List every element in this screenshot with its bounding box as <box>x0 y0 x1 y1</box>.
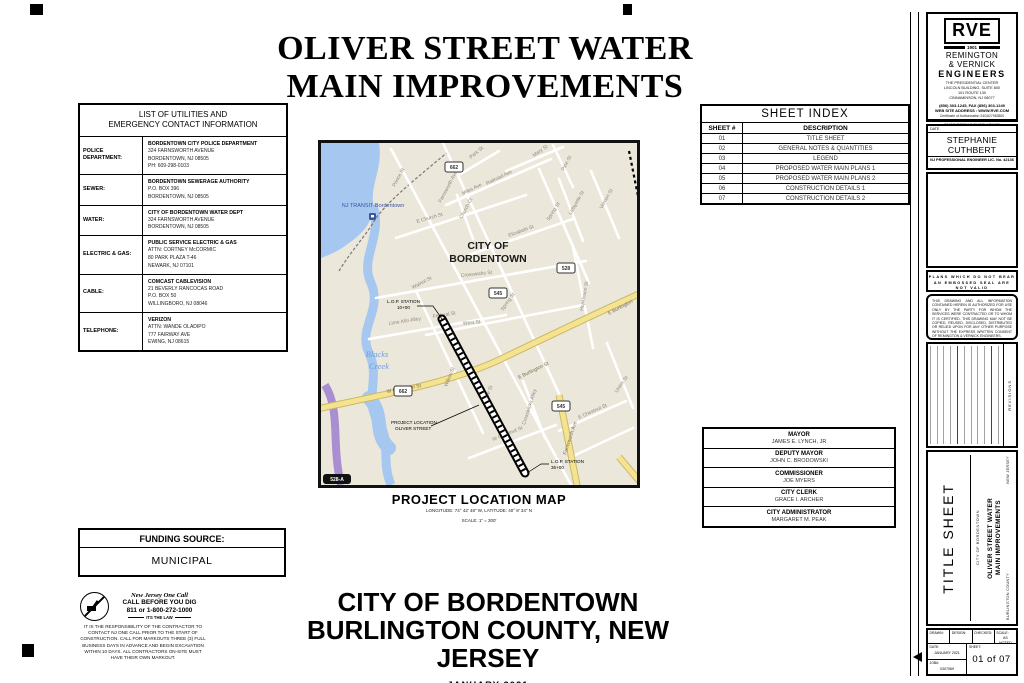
street-label: Farnsworth Ave <box>437 170 459 204</box>
officials-table: MAYORJAMES E. LYNCH, JR DEPUTY MAYORJOHN… <box>702 427 896 528</box>
firm-name: REMINGTON& VERNICK <box>928 51 1016 69</box>
scale-cell: SCALE:AS NOTED <box>995 630 1016 643</box>
firm-block: RVE 1901 REMINGTON& VERNICK ENGINEERS TH… <box>926 12 1018 122</box>
engineer-block: DATE STEPHANIE CUTHBERT NJ PROFESSIONAL … <box>926 124 1018 170</box>
street-label: E Burlington St <box>517 361 550 381</box>
utility-row: TELEPHONE: VERIZONATTN: WANDE OLADIPO777… <box>80 313 286 350</box>
sheet-index-header: SHEET #DESCRIPTION <box>702 123 908 134</box>
street-label: Lafayette St <box>568 189 587 216</box>
firm-year: 1901 <box>944 45 1000 50</box>
city-label: CITY OF <box>467 240 509 252</box>
street-labels: Park St Mary St Pine St Railroad Ave Mil… <box>386 143 634 455</box>
utility-row: SEWER: BORDENTOWN SEWERAGE AUTHORITYP.O.… <box>80 175 286 206</box>
utility-row: ELECTRIC & GAS: PUBLIC SERVICE ELECTRIC … <box>80 236 286 274</box>
highway-route <box>325 385 341 485</box>
fold-mark <box>30 4 43 15</box>
official-row: COMMISSIONERJOE MYERS <box>704 468 894 488</box>
route-shield: 528 <box>562 266 571 272</box>
map-title: PROJECT LOCATION MAP <box>318 492 640 507</box>
title-block-project: OLIVER STREET WATER MAIN IMPROVEMENTS <box>983 452 1005 624</box>
border-rule <box>910 12 911 676</box>
drawn-cell: DRAWN: <box>928 630 950 643</box>
route-shield: 662 <box>399 389 408 395</box>
sheet-index-row: 04PROPOSED WATER MAIN PLANS 1 <box>702 164 908 174</box>
sheet-index-row: 02GENERAL NOTES & QUANTITIES <box>702 144 908 154</box>
title-block-state: NEW JERSEY <box>1006 456 1010 484</box>
fold-mark <box>623 4 632 15</box>
funding-source-box: FUNDING SOURCE: MUNICIPAL <box>78 528 286 577</box>
firm-cert: Certificate of Authorization 24GA2798380… <box>928 114 1016 118</box>
title-block-client: CITY OF BORDENTOWN <box>972 452 982 624</box>
official-row: CITY ADMINISTRATORMARGARET M. PEAK <box>704 507 894 526</box>
firm-name-engineers: ENGINEERS <box>928 69 1016 79</box>
route-shield: 662 <box>450 165 459 171</box>
lop-start-label: 10+00 <box>397 305 410 310</box>
drawing-title-line2: MAIN IMPROVEMENTS <box>265 68 705 106</box>
firm-address: THE PRESIDENTIAL CENTERLINCOLN BUILDING,… <box>928 81 1016 102</box>
revisions-label: REVISIONS <box>1003 344 1015 446</box>
utility-row: CABLE: COMCAST CABLEVISION21 BEVERLY RAN… <box>80 275 286 313</box>
rail-line <box>629 151 637 201</box>
design-cell: DESIGN: <box>950 630 972 643</box>
map-coordinates: LONGITUDE: 74° 42' 48" W, LATITUDE: 40° … <box>318 508 640 513</box>
lop-end-label: L.O.P. STATION <box>551 459 584 464</box>
route-shield: 545 <box>494 291 503 297</box>
project-location-label: OLIVER STREET <box>395 426 431 431</box>
firm-web: WEB SITE ADDRESS : WWW.RVE.COM <box>928 108 1016 113</box>
official-row: MAYORJAMES E. LYNCH, JR <box>704 429 894 449</box>
date-cell: DATE:JANUARY 2021 <box>928 644 966 660</box>
fold-mark <box>22 644 34 657</box>
revisions-table: REVISIONS <box>926 342 1018 448</box>
info-block: DRAWN: DESIGN: CHECKED: SCALE:AS NOTED D… <box>926 628 1018 676</box>
creek-label: Blacks <box>366 349 389 359</box>
sheet-index-row: 03LEGEND <box>702 154 908 164</box>
creek-label: Creek <box>369 361 389 371</box>
official-row: DEPUTY MAYORJOHN C. BRODOWSKI <box>704 449 894 469</box>
one-call-name: New Jersey One Call <box>113 592 206 599</box>
engineer-date-label: DATE <box>928 126 1016 133</box>
one-call-body: IT IS THE RESPONSIBILITY OF THE CONTRACT… <box>80 624 206 661</box>
engineer-name: STEPHANIE CUTHBERT <box>928 135 1016 155</box>
border-rule <box>918 12 919 676</box>
lop-end-label: 36+00 <box>551 465 564 470</box>
checked-cell: CHECKED: <box>973 630 995 643</box>
street-label: Park St <box>468 145 485 161</box>
seal-box <box>926 172 1018 268</box>
map-graphic: Park St Mary St Pine St Railroad Ave Mil… <box>321 143 637 485</box>
project-route <box>442 319 525 473</box>
sheet-index-title: SHEET INDEX <box>702 106 908 123</box>
drawing-title: OLIVER STREET WATER MAIN IMPROVEMENTS <box>265 30 705 106</box>
sheet-index-row: 07CONSTRUCTION DETAILS 2 <box>702 194 908 203</box>
street-label: Lime Kiln Alley <box>388 316 422 327</box>
utilities-header: LIST OF UTILITIES AND EMERGENCY CONTACT … <box>80 105 286 137</box>
one-call-notice: New Jersey One Call CALL BEFORE YOU DIG … <box>80 592 206 661</box>
lop-start-label: L.O.P. STATION <box>387 299 420 304</box>
title-block: TITLE SHEET CITY OF BORDENTOWN OLIVER ST… <box>926 450 1018 626</box>
route-badge: 528-A <box>330 477 344 483</box>
disclaimer-note: THIS DRAWING AND ALL INFORMATION CONTAIN… <box>926 294 1018 340</box>
footer-titles: CITY OF BORDENTOWN BURLINGTON COUNTY, NE… <box>272 588 704 683</box>
sheet-index-row: 05PROPOSED WATER MAIN PLANS 2 <box>702 174 908 184</box>
route-shield: 545 <box>557 404 566 410</box>
no-dig-icon <box>80 592 109 621</box>
map-scale: SCALE: 1" = 300' <box>318 518 640 523</box>
firm-logo: RVE <box>944 18 1000 44</box>
utility-row: WATER: CITY OF BORDENTOWN WATER DEPT324 … <box>80 206 286 237</box>
sheet-title: TITLE SHEET <box>928 452 968 624</box>
job-cell: JOB#:0307069 <box>928 660 966 675</box>
seal-note: PLANS WHICH DO NOT BEAR AN EMBOSSED SEAL… <box>926 270 1018 292</box>
project-location-map: Park St Mary St Pine St Railroad Ave Mil… <box>318 140 640 488</box>
official-row: CITY CLERKGRACE I. ARCHER <box>704 488 894 508</box>
sheet-index-row: 01TITLE SHEET <box>702 134 908 144</box>
title-block-county-state: NEW JERSEY BURLINGTON COUNTY <box>1006 452 1016 624</box>
one-call-phone: 811 or 1-800-272-1000 <box>113 607 206 615</box>
map-caption: PROJECT LOCATION MAP LONGITUDE: 74° 42' … <box>318 492 640 523</box>
footer-city: CITY OF BORDENTOWN <box>272 588 704 616</box>
title-sheet: OLIVER STREET WATER MAIN IMPROVEMENTS LI… <box>0 0 1024 683</box>
sheet-index-table: SHEET INDEX SHEET #DESCRIPTION 01TITLE S… <box>700 104 910 205</box>
street-label: Prince St <box>391 167 406 188</box>
sheet-number: 01 of 07 <box>967 654 1016 665</box>
utilities-table: LIST OF UTILITIES AND EMERGENCY CONTACT … <box>78 103 288 352</box>
project-location-label: PROJECT LOCATION <box>391 420 437 425</box>
funding-value: MUNICIPAL <box>80 548 284 575</box>
sheet-number-cell: SHEET: 01 of 07 <box>967 644 1016 675</box>
transit-label: NJ TRANSIT-Bordentown <box>342 203 405 209</box>
engineer-license: NJ PROFESSIONAL ENGINEER LIC. No. 42136 <box>928 156 1016 162</box>
one-call-line: CALL BEFORE YOU DIG <box>113 599 206 607</box>
title-block-county: BURLINGTON COUNTY <box>1006 573 1010 620</box>
sheet-index-row: 06CONSTRUCTION DETAILS 1 <box>702 184 908 194</box>
drawing-title-line1: OLIVER STREET WATER <box>265 30 705 68</box>
firm-phone: (856) 303-1245, FAX (856) 303-1249 <box>928 103 1016 108</box>
funding-label: FUNDING SOURCE: <box>80 530 284 548</box>
footer-county: BURLINGTON COUNTY, NEW JERSEY <box>272 616 704 672</box>
utility-row: POLICE DEPARTMENT: BORDENTOWN CITY POLIC… <box>80 137 286 175</box>
city-label: BORDENTOWN <box>449 253 526 265</box>
one-call-law: ITS THE LAW <box>113 615 206 620</box>
